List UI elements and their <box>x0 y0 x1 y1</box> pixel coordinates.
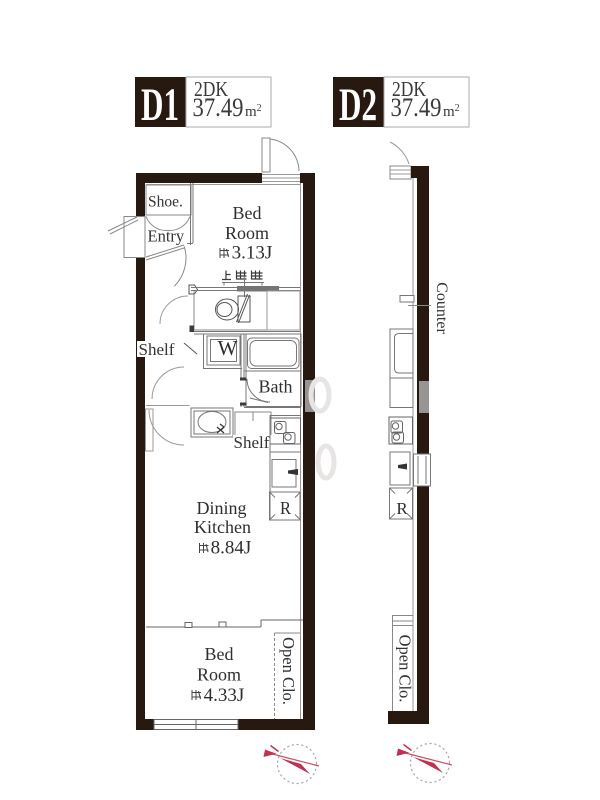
svg-text:Entry: Entry <box>148 227 185 246</box>
svg-text:Room: Room <box>197 665 241 685</box>
svg-text:4.33J: 4.33J <box>204 685 245 706</box>
svg-text:Shoe.: Shoe. <box>148 194 183 211</box>
svg-text:Bath: Bath <box>259 377 293 397</box>
svg-text:Open Clo.: Open Clo. <box>279 637 298 705</box>
svg-text:Room: Room <box>225 223 269 243</box>
svg-text:Shelf: Shelf <box>139 340 175 359</box>
svg-text:R: R <box>396 499 408 518</box>
svg-text:D1: D1 <box>141 79 179 131</box>
svg-text:3.13J: 3.13J <box>232 243 273 264</box>
svg-text:Bed: Bed <box>233 203 262 223</box>
svg-text:Open Clo.: Open Clo. <box>396 635 415 703</box>
svg-text:Kitchen: Kitchen <box>194 517 251 537</box>
svg-text:Dining: Dining <box>196 498 246 518</box>
svg-text:Shelf: Shelf <box>234 433 270 452</box>
svg-text:D2: D2 <box>339 79 377 131</box>
svg-text:Bed: Bed <box>205 644 234 664</box>
svg-text:37.49: 37.49 <box>391 93 442 122</box>
svg-text:37.49: 37.49 <box>193 93 244 122</box>
svg-text:W: W <box>218 336 238 360</box>
svg-text:R: R <box>280 498 291 518</box>
svg-text:Counter: Counter <box>433 282 450 334</box>
svg-text:8.84J: 8.84J <box>211 538 252 559</box>
